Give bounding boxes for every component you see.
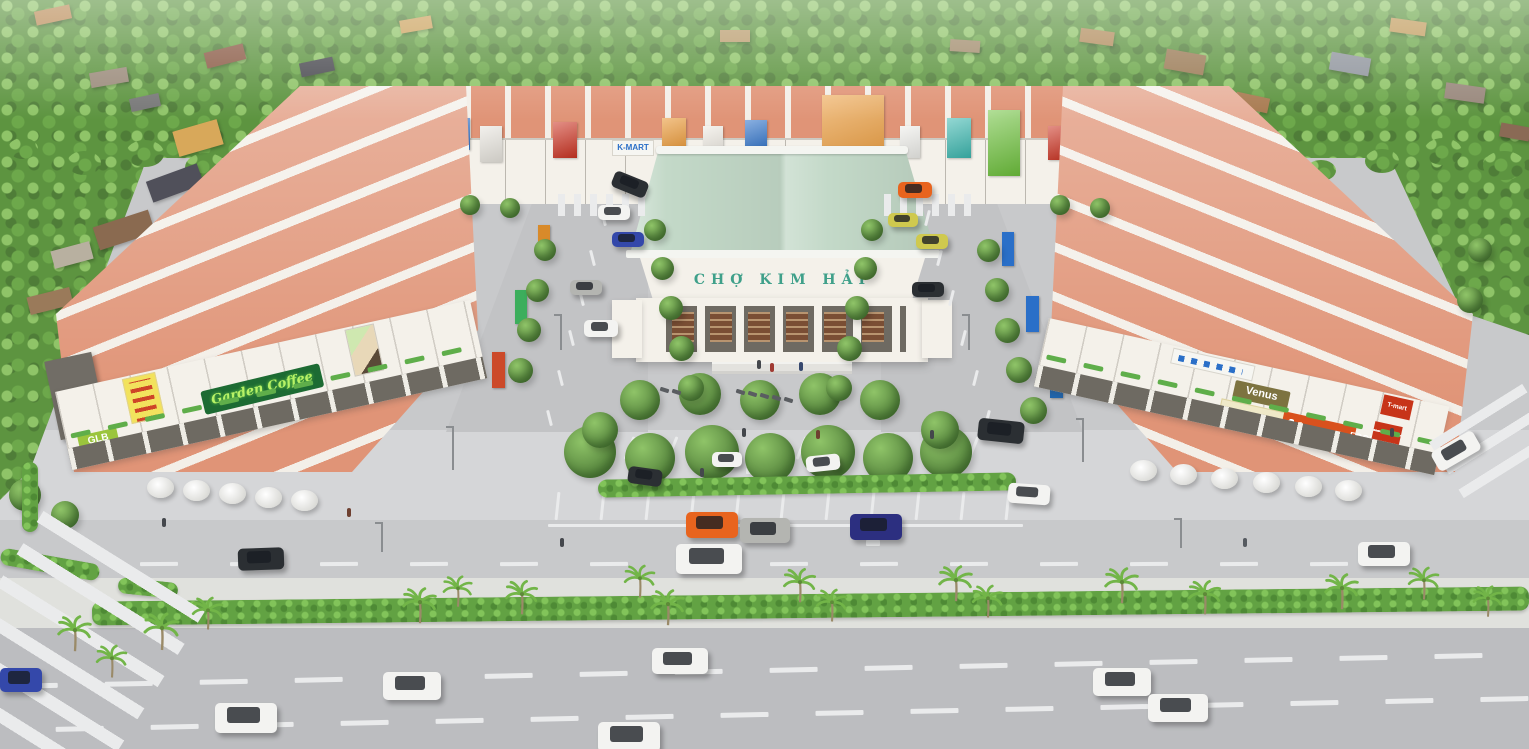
tree [517, 318, 541, 342]
palm-tree [91, 639, 133, 681]
car [1093, 668, 1151, 696]
billboard [988, 110, 1020, 176]
flower-box [182, 405, 203, 414]
car [740, 518, 790, 543]
flower-box [404, 355, 425, 364]
palm-tree [1468, 580, 1508, 620]
tree [460, 195, 480, 215]
lane-dash [960, 663, 1008, 669]
car [1358, 542, 1410, 566]
car [977, 418, 1025, 445]
tree [508, 358, 533, 383]
tree [1050, 195, 1070, 215]
lane-dash [436, 718, 484, 724]
person [162, 518, 166, 527]
tree [582, 412, 618, 448]
car [712, 452, 742, 467]
person [1243, 538, 1247, 547]
market-name-sign: CHỢ KIM HẢI [640, 270, 925, 290]
billboard [480, 126, 502, 162]
tree [854, 257, 877, 280]
lane-dash [626, 714, 674, 720]
lane-dash [1385, 698, 1433, 704]
lane-dash [200, 679, 248, 685]
market-window-bay [748, 312, 770, 342]
lane-dash [580, 671, 628, 677]
palm-tree [1183, 574, 1227, 618]
car [1148, 694, 1208, 722]
tree [659, 296, 683, 320]
street-light [1180, 518, 1182, 548]
car [676, 544, 742, 574]
palm-tree [500, 574, 544, 618]
frontage-dash [320, 562, 358, 566]
person [930, 430, 934, 439]
tree [1090, 198, 1110, 218]
palm-tree [138, 606, 186, 654]
cafe-umbrella [1211, 468, 1238, 489]
frontage-dash [500, 562, 538, 566]
cafe-umbrella [255, 487, 282, 508]
cafe-umbrella [183, 480, 210, 501]
palm-tree [645, 583, 691, 629]
car [570, 280, 602, 295]
flower-box [1157, 379, 1178, 388]
market-window-bay [710, 312, 732, 342]
market-roof-eave [626, 250, 940, 258]
house-roof [950, 39, 981, 53]
tree [644, 219, 666, 241]
market-entrance-steps [712, 362, 852, 374]
palm-tree [967, 579, 1009, 621]
person [742, 428, 746, 437]
facade-sign [1002, 232, 1014, 266]
lane-dash [1005, 706, 1053, 712]
cafe-umbrella [147, 477, 174, 498]
tree [1457, 287, 1483, 313]
tree [1468, 238, 1492, 262]
road-arrow [866, 540, 880, 546]
tree [740, 380, 780, 420]
tree-canopy-blob [8, 138, 38, 159]
market-window-bay [786, 312, 808, 342]
frontage-dash [1040, 562, 1078, 566]
aerial-render-scene: K-MART CHỢ KIM HẢI Garden Coffee GLB Ven… [0, 0, 1529, 749]
tree [669, 336, 694, 361]
market-right-wing [922, 300, 952, 358]
lane-dash [1339, 655, 1387, 661]
lane-dash [1434, 653, 1482, 659]
lane-dash [1480, 696, 1528, 702]
street-light [381, 522, 383, 552]
tree [845, 296, 869, 320]
lane-dash [815, 710, 863, 716]
tree-canopy-blob [126, 140, 164, 167]
lane-dash [341, 720, 389, 726]
car [612, 232, 644, 247]
palm-tree [187, 591, 229, 633]
car [912, 282, 944, 297]
flower-box [1083, 363, 1104, 372]
facade-sign [492, 352, 505, 388]
palm-tree [397, 581, 443, 627]
house-roof [720, 30, 750, 42]
car [652, 648, 708, 674]
frontage-dash [1220, 562, 1258, 566]
tree [526, 279, 549, 302]
tree [861, 219, 883, 241]
car [215, 703, 277, 733]
cafe-umbrella [1295, 476, 1322, 497]
cafe-umbrella [291, 490, 318, 511]
tree [534, 239, 556, 261]
market-roof-ridge [656, 146, 908, 154]
tree [995, 318, 1020, 343]
car [1007, 483, 1050, 506]
cafe-umbrella [1130, 460, 1157, 481]
car [0, 668, 42, 692]
car [383, 672, 441, 700]
lane-dash [531, 716, 579, 722]
palm-tree [1403, 561, 1445, 603]
billboard [947, 118, 971, 158]
lane-dash [1149, 659, 1197, 665]
person [1390, 428, 1394, 437]
lane-dash [151, 724, 199, 730]
car [598, 722, 660, 749]
lane-dash [1244, 657, 1292, 663]
flower-box [1120, 371, 1141, 380]
street-light [452, 426, 454, 470]
person [757, 360, 761, 369]
person [347, 508, 351, 517]
car [686, 512, 738, 538]
car [888, 213, 918, 227]
tree [860, 380, 900, 420]
car [238, 547, 285, 571]
lane-dash [1290, 700, 1338, 706]
person [816, 430, 820, 439]
flower-box [1046, 354, 1067, 363]
palm-tree [811, 583, 853, 625]
tmart-sign: T-mart [1380, 394, 1414, 420]
car [916, 234, 948, 249]
tree [678, 375, 704, 401]
tree [500, 198, 520, 218]
lane-dash [910, 708, 958, 714]
tree [837, 336, 862, 361]
car [850, 514, 902, 540]
cafe-umbrella [1253, 472, 1280, 493]
person [770, 363, 774, 372]
tree [985, 278, 1009, 302]
flower-box [441, 347, 462, 356]
lane-dash [1100, 704, 1148, 710]
flower-box [107, 421, 128, 430]
lane-dash [770, 667, 818, 673]
facade-sign [1026, 296, 1039, 332]
tree [620, 380, 660, 420]
tree-canopy-blob [1365, 149, 1399, 173]
lane-dash [485, 673, 533, 679]
street-light [968, 314, 970, 350]
frontage-dash [140, 562, 178, 566]
lane-dash [295, 677, 343, 683]
frontage-dash [860, 562, 898, 566]
tree-canopy-blob [1424, 138, 1462, 165]
tree [826, 375, 852, 401]
tree-canopy-blob [67, 151, 101, 175]
palm-tree [1099, 561, 1145, 607]
tree [977, 239, 1000, 262]
person [700, 468, 704, 477]
lane-dash [720, 712, 768, 718]
frontage-dash [410, 562, 448, 566]
lane-dash [865, 665, 913, 671]
tree [651, 257, 674, 280]
person [799, 362, 803, 371]
flower-box [1194, 387, 1215, 396]
lane-dash [1054, 661, 1102, 667]
car [898, 182, 932, 198]
car [598, 205, 630, 220]
cafe-umbrella [1170, 464, 1197, 485]
palm-tree [438, 570, 478, 610]
tree [921, 411, 959, 449]
tree [1020, 397, 1047, 424]
street-light [560, 314, 562, 350]
billboard [553, 122, 577, 158]
kmart-sign: K-MART [612, 140, 654, 156]
cafe-umbrella [219, 483, 246, 504]
car [584, 320, 618, 337]
tree [1006, 357, 1032, 383]
person [560, 538, 564, 547]
street-light [1082, 418, 1084, 462]
cafe-umbrella [1335, 480, 1362, 501]
frontage-dash [1310, 562, 1348, 566]
flower-box [330, 372, 351, 381]
palm-tree [1319, 567, 1365, 613]
